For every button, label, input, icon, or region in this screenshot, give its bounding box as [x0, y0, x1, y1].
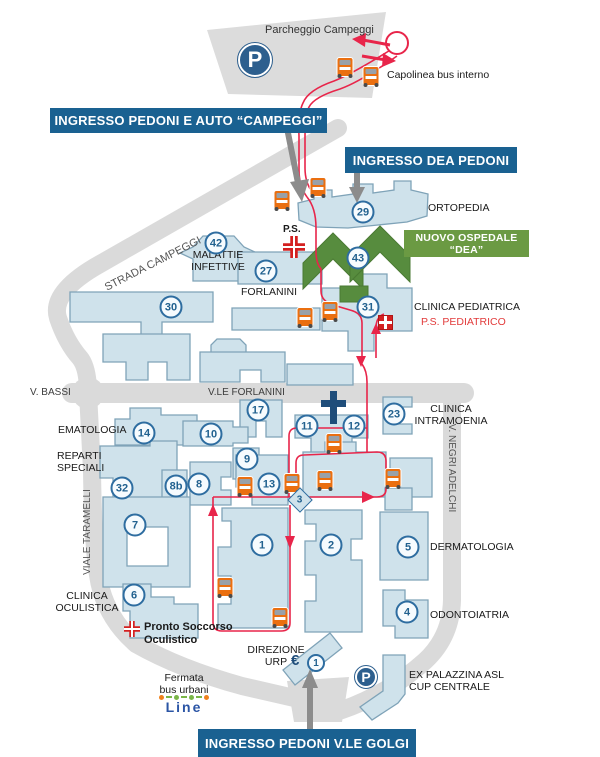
building-number-marker: 4 [396, 601, 419, 624]
bus-stripe [340, 67, 351, 70]
line-bus-logo: Line [146, 694, 222, 714]
building-number-marker: 31 [357, 296, 380, 319]
route-terminus-circle [386, 32, 408, 54]
map-label: Pronto Soccorso Oculistico [144, 621, 233, 647]
bus-stripe [313, 187, 324, 190]
map-label: FORLANINI [241, 286, 297, 298]
map-label: EX PALAZZINA ASL CUP CENTRALE [409, 669, 504, 694]
bus-wheel [327, 450, 331, 454]
banner-ingresso-dea: INGRESSO DEA PEDONI [345, 147, 517, 173]
map-label: € [291, 652, 299, 670]
bus-windshield [325, 304, 336, 309]
building-number-marker: 30 [160, 296, 183, 319]
building-number-marker: 27 [255, 260, 278, 283]
bus-wheel [309, 324, 313, 328]
map-label: VIALE TARAMELLI [82, 489, 94, 575]
bus-icon [317, 470, 334, 490]
building-number-marker: 17 [247, 399, 270, 422]
bus-stripe [325, 311, 336, 314]
bus-icon [297, 307, 314, 327]
bus-icon [272, 607, 289, 627]
bus-wheel [334, 318, 338, 322]
building-2 [305, 510, 362, 632]
building-mid-4 [287, 364, 353, 385]
bus-wheel [364, 83, 368, 87]
bus-stripe [300, 317, 311, 320]
bus-wheel [298, 324, 302, 328]
map-label: Parcheggio Campeggi [265, 24, 374, 37]
map-label: EMATOLOGIA [58, 424, 126, 436]
bus-wheel [229, 594, 233, 598]
diamond-marker-label: 3 [297, 495, 303, 506]
map-label: DERMATOLOGIA [430, 541, 514, 553]
map-label: V. BASSI [30, 387, 71, 399]
bus-windshield [366, 69, 377, 74]
map-label: REPARTI SPECIALI [57, 450, 104, 475]
bus-wheel [249, 493, 253, 497]
building-number-marker: 2 [320, 534, 343, 557]
bus-stripe [220, 587, 231, 590]
banner-ingresso-golgi: INGRESSO PEDONI V.LE GOLGI [198, 729, 416, 757]
bus-icon [310, 177, 327, 197]
building-5a [385, 488, 412, 510]
map-label: P.S. [283, 224, 301, 236]
bus-icon [322, 301, 339, 321]
building-number-marker: 29 [352, 201, 375, 224]
bus-wheel [375, 83, 379, 87]
bus-wheel [318, 487, 322, 491]
bus-windshield [240, 479, 251, 484]
bus-wheel [286, 207, 290, 211]
map-label: ORTOPEDIA [428, 202, 489, 214]
building-number-marker: 9 [236, 448, 259, 471]
map-label: Capolinea bus interno [387, 69, 489, 81]
bus-wheel [349, 74, 353, 78]
first-aid-cross-icon [378, 315, 393, 330]
map-label: CLINICA OCULISTICA [50, 590, 124, 615]
bus-wheel [285, 490, 289, 494]
bus-icon [326, 433, 343, 453]
bus-stripe [388, 478, 399, 481]
map-label: V. NEGRI ADELCHI [445, 424, 457, 513]
building-mid-1 [103, 334, 190, 380]
bus-wheel [323, 318, 327, 322]
building-number-marker: 10 [200, 423, 223, 446]
line-logo-text: Line [146, 700, 222, 714]
building-number-marker: 8 [188, 473, 211, 496]
bus-windshield [277, 193, 288, 198]
bus-icon [337, 57, 354, 77]
building-number-marker: 11 [296, 415, 319, 438]
map-label: ODONTOIATRIA [430, 609, 509, 621]
urp-number-marker: 1 [307, 654, 325, 672]
bus-wheel [322, 194, 326, 198]
bus-stripe [240, 486, 251, 489]
bus-icon [363, 66, 380, 86]
banner-nuovo-ospedale-dea: NUOVO OSPEDALE “DEA” [404, 230, 529, 257]
bus-icon [217, 577, 234, 597]
building-number-marker: 43 [347, 247, 370, 270]
road-junction-circle [72, 377, 104, 409]
map-label: P.S. PEDIATRICO [421, 316, 506, 328]
bus-wheel [338, 74, 342, 78]
building-number-marker: 14 [133, 422, 156, 445]
building-number-marker: 7 [124, 514, 147, 537]
building-number-marker: 5 [397, 536, 420, 559]
building-number-marker: 12 [343, 415, 366, 438]
bus-windshield [329, 436, 340, 441]
bus-wheel [386, 485, 390, 489]
building-number-marker: 8b [165, 475, 188, 498]
building-30 [70, 292, 213, 335]
bus-windshield [320, 473, 331, 478]
bus-stripe [320, 480, 331, 483]
bus-stripe [287, 483, 298, 486]
bus-wheel [284, 624, 288, 628]
bus-stripe [366, 76, 377, 79]
bus-stripe [275, 617, 286, 620]
building-number-marker: 32 [111, 477, 134, 500]
hospital-campus-map: INGRESSO PEDONI E AUTO “CAMPEGGI” INGRES… [0, 0, 600, 757]
parking-icon: P [238, 43, 272, 77]
building-number-marker: 6 [123, 584, 146, 607]
bus-windshield [313, 180, 324, 185]
bus-windshield [388, 471, 399, 476]
bus-stripe [277, 200, 288, 203]
bus-wheel [311, 194, 315, 198]
bus-windshield [220, 580, 231, 585]
bus-wheel [273, 624, 277, 628]
bus-windshield [300, 310, 311, 315]
bus-windshield [340, 60, 351, 65]
banner-ingresso-campeggi: INGRESSO PEDONI E AUTO “CAMPEGGI” [50, 108, 327, 133]
bus-icon [385, 468, 402, 488]
map-label: V.LE FORLANINI [208, 387, 285, 399]
parking-icon: P [355, 666, 377, 688]
building-number-marker: 1 [251, 534, 274, 557]
map-label: CLINICA PEDIATRICA [414, 301, 520, 313]
bus-wheel [238, 493, 242, 497]
bus-wheel [275, 207, 279, 211]
bus-wheel [329, 487, 333, 491]
building-number-marker: 13 [258, 473, 281, 496]
bus-windshield [275, 610, 286, 615]
bus-icon [274, 190, 291, 210]
building-mid-3 [200, 352, 285, 382]
building-number-marker: 42 [205, 232, 228, 255]
bus-wheel [218, 594, 222, 598]
bus-windshield [287, 476, 298, 481]
bus-wheel [397, 485, 401, 489]
bus-stripe [329, 443, 340, 446]
building-number-marker: 23 [383, 403, 406, 426]
bus-wheel [338, 450, 342, 454]
bus-icon [237, 476, 254, 496]
